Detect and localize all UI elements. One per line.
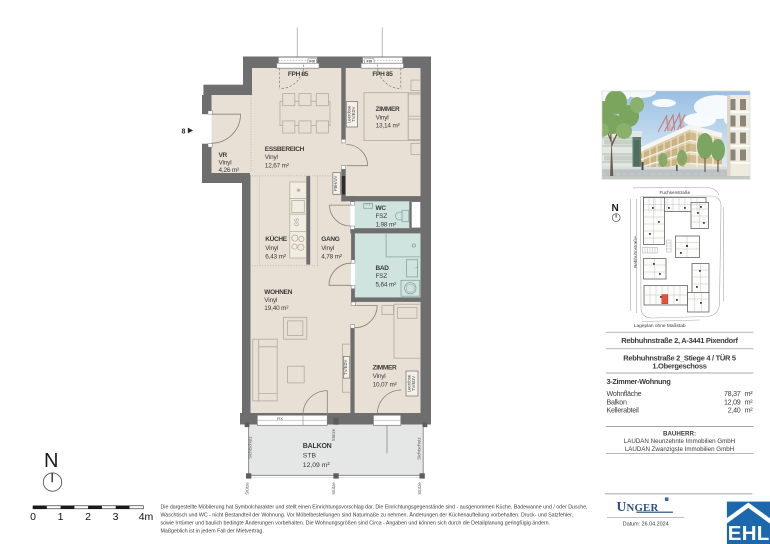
svg-text:Balkon: Balkon [607,398,627,406]
svg-text:ESSBEREICH: ESSBEREICH [265,146,305,153]
svg-text:Stütze: Stütze [331,428,336,441]
svg-text:Stütze: Stütze [417,482,422,495]
svg-text:Rebhuhnstraße 2, A-3441 Pixend: Rebhuhnstraße 2, A-3441 Pixendorf [621,336,738,345]
svg-text:12,09: 12,09 [724,398,741,406]
svg-text:FIX: FIX [277,417,283,421]
svg-text:Sichtschutz: Sichtschutz [417,437,422,459]
svg-text:10,07 m²: 10,07 m² [373,382,397,389]
svg-text:VR: VR [219,152,228,159]
svg-text:WOHNEN: WOHNEN [264,289,292,296]
svg-text:Die dargestellte Möblierung ha: Die dargestellte Möblierung hat Symbolch… [161,504,588,510]
svg-text:Sichtschutz: Sichtschutz [248,436,253,458]
svg-text:ZIMMER: ZIMMER [373,365,397,372]
svg-text:Vinyl: Vinyl [373,373,386,380]
svg-text:sowie Irrtümer und baulich bed: sowie Irrtümer und baulich bedingte Ände… [161,519,551,526]
svg-text:EHL: EHL [728,522,770,544]
svg-text:N: N [612,203,619,214]
svg-text:WC: WC [376,205,387,212]
svg-text:1: 1 [58,511,64,523]
svg-text:4,78 m²: 4,78 m² [321,253,342,260]
svg-text:BAUHERR:: BAUHERR: [663,431,696,438]
svg-text:8: 8 [182,128,186,135]
svg-text:m²: m² [745,390,754,398]
svg-text:Rebhuhnstraße: Rebhuhnstraße [633,236,638,268]
svg-text:STB: STB [303,453,317,460]
svg-text:GANG: GANG [321,236,340,243]
svg-text:BALKON: BALKON [303,443,332,450]
svg-text:Vinyl: Vinyl [321,245,334,252]
svg-text:TV/EDV: TV/EDV [343,360,348,375]
svg-text:12,09 m²: 12,09 m² [303,462,331,469]
svg-text:78,37: 78,37 [724,390,741,398]
svg-text:Wohnfläche: Wohnfläche [607,390,642,398]
svg-text:FPH 85: FPH 85 [372,71,393,78]
svg-text:Vinyl: Vinyl [265,154,278,161]
svg-text:GS: GS [294,218,300,226]
svg-text:13,14 m²: 13,14 m² [376,123,400,130]
svg-text:KÜCHE: KÜCHE [265,234,288,243]
svg-text:1,98 m²: 1,98 m² [376,222,397,229]
svg-text:Kellerabteil: Kellerabteil [607,407,640,415]
svg-text:ZIMMER: ZIMMER [376,106,400,113]
svg-text:4,26 m²: 4,26 m² [219,167,240,174]
svg-text:Fuchsenstraße: Fuchsenstraße [660,190,691,195]
svg-text:m²: m² [745,398,754,406]
svg-text:FIX: FIX [309,59,315,63]
svg-text:0: 0 [30,511,36,523]
svg-text:5,64 m²: 5,64 m² [376,281,397,288]
svg-text:m²: m² [745,407,754,415]
svg-text:Vinyl: Vinyl [219,160,232,167]
svg-text:Waschtisch und WC - nicht Best: Waschtisch und WC - nicht Bestandteil de… [161,511,573,518]
svg-text:Stütze: Stütze [331,482,336,495]
svg-text:3-Zimmer-Wohnung: 3-Zimmer-Wohnung [607,377,671,386]
svg-text:19,40 m²: 19,40 m² [264,305,288,312]
svg-text:FBH/UV: FBH/UV [333,176,338,192]
svg-text:Vinyl: Vinyl [265,245,278,252]
svg-text:TV/EDV: TV/EDV [411,376,416,391]
svg-text:2,40: 2,40 [728,407,741,415]
svg-text:FSZ: FSZ [376,213,388,220]
svg-text:1.Obergeschoss: 1.Obergeschoss [652,362,706,371]
svg-text:3: 3 [113,511,119,523]
svg-text:LAUDAN Zwanzigste Immobilien G: LAUDAN Zwanzigste Immobilien GmbH [625,446,734,453]
svg-text:FPH 85: FPH 85 [288,71,309,78]
svg-text:LAUDAN Neunzehnte Immobilien G: LAUDAN Neunzehnte Immobilien GmbH [624,438,735,445]
svg-text:FIX: FIX [367,59,373,63]
svg-text:BAD: BAD [376,265,390,272]
svg-text:N: N [44,450,58,472]
svg-text:Stütze: Stütze [245,482,250,495]
svg-text:Datum: 26.04.2024: Datum: 26.04.2024 [623,521,669,527]
svg-text:Vinyl: Vinyl [376,114,389,121]
svg-text:2: 2 [85,511,91,523]
svg-text:Vinyl: Vinyl [264,297,277,304]
svg-text:Maßgeblich ist in jedem Fall d: Maßgeblich ist in jedem Fall der Mietver… [161,528,264,534]
svg-text:12,67 m²: 12,67 m² [265,162,289,169]
svg-text:6,43 m²: 6,43 m² [265,253,286,260]
svg-text:Lageplan ohne Maßstab: Lageplan ohne Maßstab [634,323,686,329]
svg-text:FSZ: FSZ [376,273,388,280]
svg-text:TV/EDV: TV/EDV [351,107,356,122]
svg-text:4m: 4m [139,511,154,523]
